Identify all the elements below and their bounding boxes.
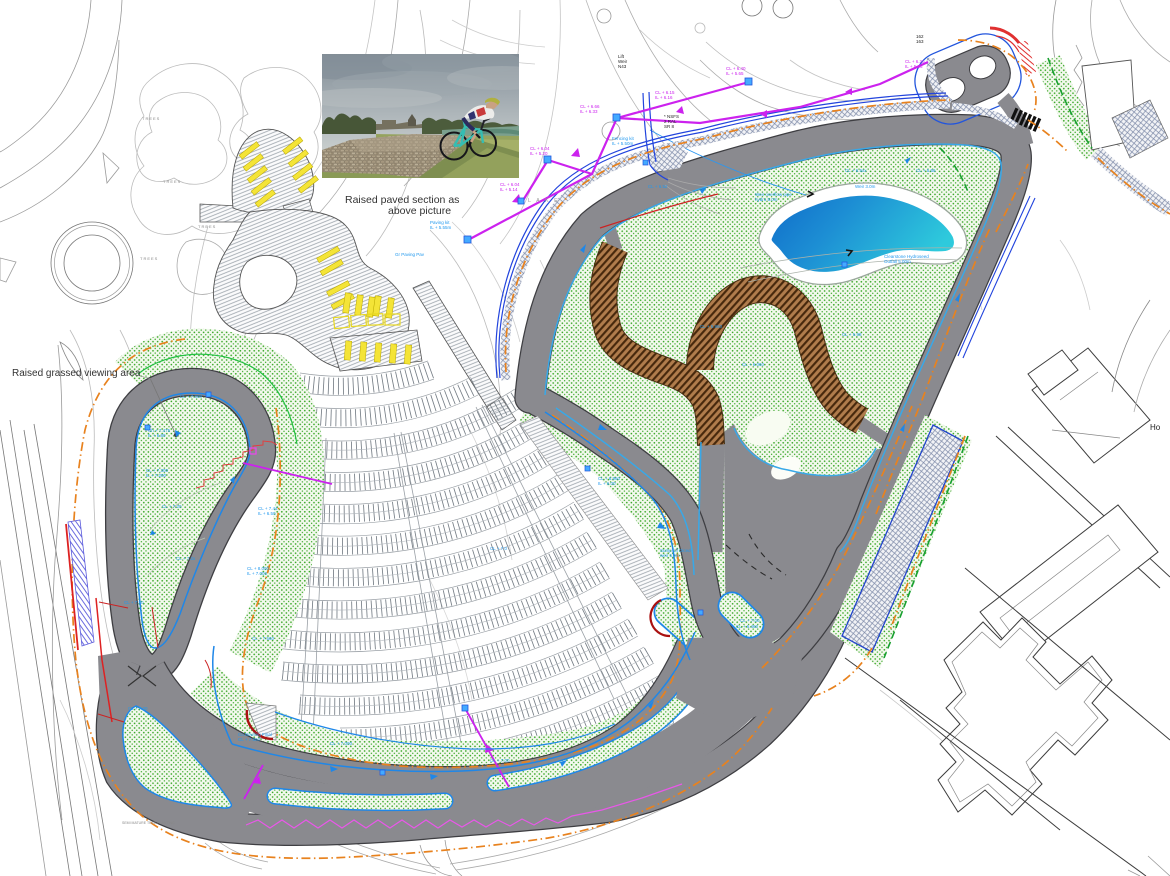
svg-text:CL + 7.2x: CL + 7.2x (176, 556, 196, 561)
svg-text:CL + 7.000: CL + 7.000 (330, 741, 352, 746)
svg-text:Ho: Ho (1150, 423, 1161, 432)
svg-text:CL + 5.98: CL + 5.98 (842, 332, 862, 337)
svg-text:SEMI MATURE TREE PLANTING: SEMI MATURE TREE PLANTING (122, 821, 175, 825)
svg-text:CL + 7.0: CL + 7.0 (490, 546, 507, 551)
svg-text:IL + 5.50m: IL + 5.50m (612, 141, 633, 146)
svg-text:IL + 6.80: IL + 6.80 (148, 433, 166, 438)
svg-text:Outfall 5.00m: Outfall 5.00m (884, 259, 911, 264)
svg-text:CL + 7.00: CL + 7.00 (128, 706, 148, 711)
svg-text:L A K E: L A K E (528, 198, 560, 204)
svg-text:IL + 6.00: IL + 6.00 (598, 481, 616, 486)
svg-text:CL + 5.56: CL + 5.56 (916, 168, 936, 173)
svg-text:CL + 7.00: CL + 7.00 (490, 758, 510, 763)
svg-text:CL + 5.960: CL + 5.960 (700, 324, 722, 329)
svg-text:CL + 6.460: CL + 6.460 (736, 624, 758, 629)
svg-text:Gr Paving Pav: Gr Paving Pav (395, 252, 425, 257)
svg-text:IL + 6.33: IL + 6.33 (580, 109, 598, 114)
svg-text:IL + 5.20: IL + 5.20 (530, 151, 548, 156)
svg-text:CL + 7.560: CL + 7.560 (252, 636, 274, 641)
svg-text:CL + 6.060: CL + 6.060 (742, 362, 764, 367)
svg-text:CL + 7.560: CL + 7.560 (238, 737, 260, 742)
svg-text:CL + 7.50: CL + 7.50 (124, 600, 144, 605)
svg-text:weir 5.0m: weir 5.0m (660, 553, 680, 558)
svg-text:hydro 5.0m: hydro 5.0m (755, 197, 778, 202)
svg-text:IL + 6.50: IL + 6.50 (258, 511, 276, 516)
svg-text:IL + 6.16: IL + 6.16 (655, 95, 673, 100)
svg-text:163: 163 (916, 39, 924, 44)
svg-text:CL + 6.52: CL + 6.52 (648, 184, 668, 189)
svg-text:TREES: TREES (163, 179, 181, 184)
svg-text:IL + 5.14: IL + 5.14 (500, 187, 518, 192)
svg-text:Weir 3.0m: Weir 3.0m (855, 184, 876, 189)
svg-text:TREES: TREES (198, 224, 216, 229)
svg-text:TREES: TREES (142, 116, 160, 121)
svg-text:IL + 5.65: IL + 5.65 (726, 71, 744, 76)
svg-text:IL + 5.66: IL + 5.66 (905, 64, 923, 69)
svg-text:IL + 5.55m: IL + 5.55m (430, 225, 451, 230)
svg-text:TREES: TREES (140, 256, 158, 261)
svg-text:CL + 7.00: CL + 7.00 (740, 618, 760, 623)
svg-text:CL + 7.20: CL + 7.20 (162, 504, 182, 509)
svg-text:IL + 7.200: IL + 7.200 (146, 473, 166, 478)
svg-text:above picture: above picture (388, 205, 451, 217)
svg-text:IL + 7.000: IL + 7.000 (247, 571, 267, 576)
svg-text:SR 8: SR 8 (664, 124, 675, 129)
svg-text:N43: N43 (618, 64, 627, 69)
svg-text:CL + 7.000: CL + 7.000 (180, 394, 202, 399)
svg-text:CL + 6.5xx: CL + 6.5xx (845, 168, 867, 173)
svg-text:Raised grassed viewing area: Raised grassed viewing area (12, 368, 141, 379)
